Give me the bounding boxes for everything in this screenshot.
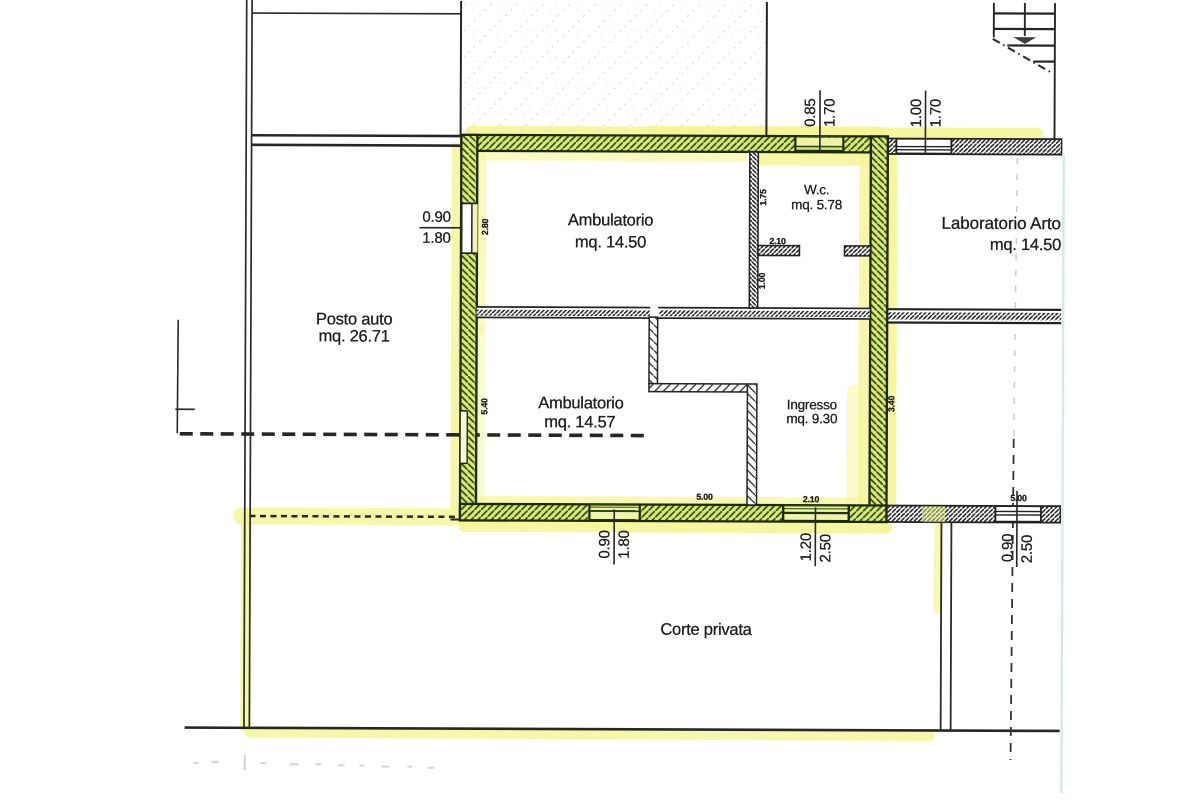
svg-text:2.10: 2.10 (769, 236, 786, 246)
svg-text:mq. 14.50: mq. 14.50 (990, 236, 1061, 254)
svg-text:5.00: 5.00 (696, 492, 713, 502)
svg-text:Ingresso: Ingresso (787, 397, 837, 412)
svg-text:2.50: 2.50 (817, 534, 834, 562)
svg-text:2.10: 2.10 (803, 494, 820, 504)
svg-text:1.00: 1.00 (908, 99, 925, 127)
svg-text:0.85: 0.85 (802, 98, 819, 126)
svg-text:mq. 26.71: mq. 26.71 (319, 327, 390, 345)
svg-text:mq. 5.78: mq. 5.78 (791, 197, 842, 212)
svg-text:5.40: 5.40 (479, 398, 489, 415)
svg-text:2.80: 2.80 (480, 218, 490, 235)
svg-text:Corte privata: Corte privata (660, 621, 752, 639)
svg-text:1.00: 1.00 (757, 273, 767, 290)
svg-text:mq. 9.30: mq. 9.30 (786, 411, 837, 426)
svg-text:1.80: 1.80 (422, 230, 450, 247)
svg-text:0.90: 0.90 (999, 534, 1016, 562)
svg-text:Laboratorio Artolo: Laboratorio Artolo (942, 214, 1074, 234)
svg-text:mq. 14.50: mq. 14.50 (575, 233, 646, 251)
svg-text:1.80: 1.80 (616, 530, 633, 558)
svg-text:Posto auto: Posto auto (316, 310, 393, 328)
svg-text:1.75: 1.75 (758, 189, 768, 206)
svg-text:0.90: 0.90 (596, 530, 613, 558)
svg-text:mq. 14.57: mq. 14.57 (544, 413, 615, 431)
svg-text:0.90: 0.90 (422, 209, 450, 226)
svg-text:1.70: 1.70 (821, 99, 838, 127)
svg-text:1.20: 1.20 (798, 533, 815, 561)
svg-text:Ambulatorio: Ambulatorio (568, 211, 653, 229)
svg-text:5.00: 5.00 (1010, 493, 1027, 503)
svg-text:3.40: 3.40 (886, 396, 896, 413)
svg-text:W.c.: W.c. (804, 182, 830, 197)
svg-text:Ambulatorio: Ambulatorio (538, 394, 623, 412)
svg-text:1.70: 1.70 (927, 99, 944, 127)
svg-text:2.50: 2.50 (1019, 535, 1036, 563)
